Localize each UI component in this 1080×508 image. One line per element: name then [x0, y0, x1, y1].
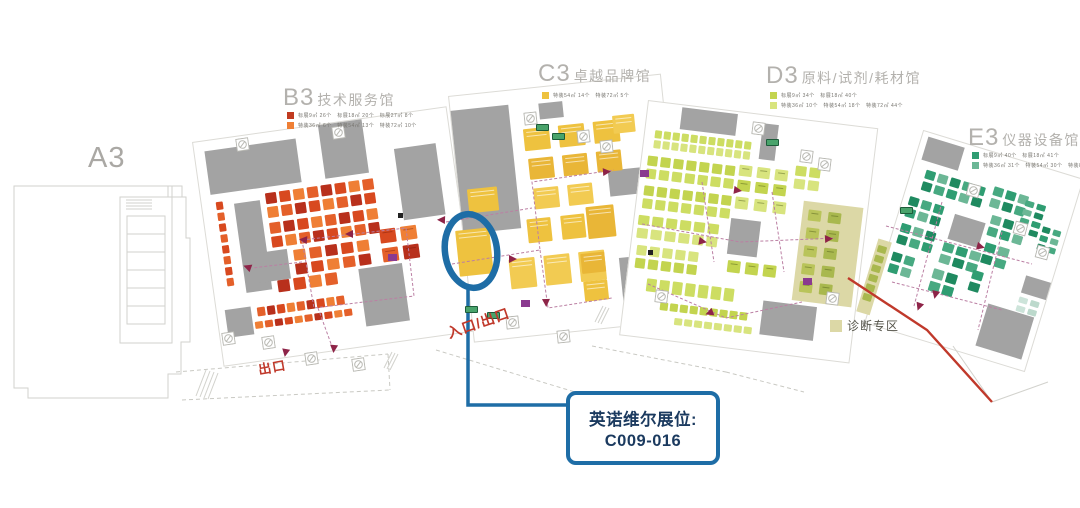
booth-cell [220, 234, 228, 243]
booth-cell [1031, 221, 1041, 229]
booth-cell [669, 303, 678, 312]
booth-cell [311, 216, 323, 228]
stairs-facility-icon [304, 351, 319, 366]
booth-cell [708, 193, 719, 204]
booth-cell [997, 246, 1010, 258]
booth-cell [699, 307, 708, 316]
booth-cell [342, 256, 355, 269]
booth-cell [299, 232, 311, 244]
booth-cell [320, 184, 332, 196]
booth-cell [908, 238, 920, 250]
booth-cell [706, 236, 718, 247]
booth-cell [324, 214, 336, 226]
booth-cell [745, 262, 759, 275]
booth-cell [896, 234, 908, 246]
hall-e3-code: E3 [968, 124, 999, 152]
booth-cell [634, 258, 645, 269]
booth-cell [255, 321, 264, 329]
legend-text: 特装36㎡ 31个 特装54㎡ 30个 特装81㎡ 34个 [983, 162, 1080, 169]
legend-row: 特装36㎡ 10个 特装54㎡ 18个 特装72㎡ 44个 [770, 102, 903, 109]
booth-cell [707, 223, 719, 234]
booth-cell [891, 251, 903, 263]
booth-cell [793, 178, 805, 189]
booth-cell [533, 186, 560, 209]
booth-cell [662, 248, 673, 259]
stairs-facility-icon [221, 331, 236, 346]
booth-cell [921, 242, 933, 254]
restroom-icon [388, 254, 397, 261]
column-marker [398, 213, 403, 218]
booth-cell [903, 255, 915, 267]
restroom-icon [521, 300, 530, 307]
booth-cell [933, 185, 945, 197]
booth-cell [325, 244, 338, 257]
structure-block [253, 249, 291, 283]
booth-cell [304, 314, 313, 322]
booth-cell [707, 147, 715, 156]
booth-cell [350, 194, 362, 206]
booth-cell [721, 195, 732, 206]
booth-cell [296, 301, 305, 311]
diagnostic-zone-label: 诊断专区 [847, 317, 899, 334]
booth-cell [917, 211, 929, 223]
booth-cell [276, 304, 285, 314]
booth-cell [222, 245, 230, 254]
restroom-icon [640, 170, 649, 177]
booth-cell [823, 248, 837, 261]
booth-cell [340, 226, 352, 238]
booth-cell [699, 162, 710, 173]
booth-cell [949, 177, 961, 189]
stairs-facility-icon [556, 329, 570, 343]
booth-cell [805, 227, 819, 240]
booth-cell [729, 311, 738, 320]
booth-cell [900, 267, 912, 279]
booth-cell [314, 313, 323, 321]
booth-cell [803, 245, 817, 258]
booth-cell [269, 222, 281, 234]
booth-cell [638, 215, 650, 226]
booth-cell [257, 306, 266, 316]
booth-cell [562, 153, 589, 176]
booth-cell [680, 143, 688, 152]
booth-cell [1052, 229, 1061, 237]
booth-cell [583, 279, 609, 301]
booth-cell [528, 156, 555, 179]
booth-cell [734, 196, 748, 209]
hall-c3-code: C3 [538, 60, 571, 88]
hall-b3-legend: 标展9㎡ 26个 标展18㎡ 20个 标展27㎡ 8个特装36㎡ 6个 特装54… [287, 112, 417, 132]
booth-cell [920, 200, 932, 212]
booth-cell [306, 186, 318, 198]
booth-cell [306, 300, 315, 310]
booth-cell [723, 288, 735, 302]
hall-b3-name: 技术服务馆 [317, 90, 395, 110]
booth-cell [650, 229, 662, 240]
booth-cell [366, 208, 378, 220]
booth-cell [364, 192, 376, 204]
booth-cell [666, 218, 678, 229]
booth-cell [986, 226, 998, 238]
booth-cell [1005, 190, 1017, 202]
booth-cell [225, 267, 233, 276]
booth-cell [660, 157, 671, 168]
legend-text: 特装36㎡ 6个 特装54㎡ 13个 特装72㎡ 10个 [298, 122, 417, 129]
legend-text: 特装54㎡ 14个 特装72㎡ 5个 [553, 92, 629, 99]
booth-cell [699, 136, 707, 145]
service-point-icon [552, 133, 565, 140]
booth-cell [697, 175, 708, 186]
booth-cell [348, 180, 360, 192]
booth-cell [274, 318, 283, 326]
legend-text: 特装36㎡ 10个 特装54㎡ 18个 特装72㎡ 44个 [781, 102, 903, 109]
booth-cell [284, 317, 293, 325]
booth-cell [223, 256, 231, 265]
booth-cell [1033, 212, 1043, 220]
booth-cell [772, 184, 786, 197]
booth-cell [706, 206, 717, 217]
structure-block [538, 101, 564, 119]
booth-cell [704, 322, 713, 330]
booth-cell [825, 230, 839, 243]
hall-b3-title: B3 技术服务馆 [283, 84, 395, 112]
booth-cell [654, 130, 662, 139]
structure-block [759, 301, 817, 341]
booth-cell [912, 227, 924, 239]
stairs-facility-icon [799, 149, 813, 163]
booth-cell [708, 137, 716, 146]
booth-cell [1024, 200, 1034, 208]
booth-cell [311, 260, 324, 273]
booth-cell [672, 132, 680, 141]
booth-cell [313, 230, 325, 242]
booth-cell [688, 251, 699, 262]
booth-cell [695, 192, 706, 203]
booth-cell [887, 263, 899, 275]
booth-cell [560, 213, 586, 239]
booth-cell [1029, 300, 1039, 308]
booth-cell [316, 298, 325, 308]
booth-cell [669, 188, 680, 199]
restroom-icon [803, 278, 812, 285]
booth-cell [334, 182, 346, 194]
booth-cell [526, 217, 552, 243]
booth-cell [352, 210, 364, 222]
booth-cell [713, 323, 722, 331]
booth-cell [336, 295, 345, 305]
booth-cell [684, 173, 695, 184]
booth-cell [671, 281, 683, 295]
legend-row: 特装54㎡ 14个 特装72㎡ 5个 [542, 92, 629, 99]
structure-block [727, 218, 761, 257]
stairs-facility-icon [576, 129, 590, 143]
booth-cell [1018, 296, 1028, 304]
booth-cell [921, 181, 933, 193]
booth-cell [671, 142, 679, 151]
booth-cell [743, 151, 751, 160]
structure-block [451, 105, 522, 234]
booth-cell [933, 204, 945, 216]
booth-cell [1036, 204, 1046, 212]
booth-cell [334, 310, 343, 318]
hall-b3 [192, 106, 478, 367]
booth-cell [712, 163, 723, 174]
booth-cell [971, 270, 984, 282]
booth-cell [400, 225, 418, 241]
service-point-icon [766, 139, 779, 146]
booth-cell [795, 166, 807, 177]
booth-cell [277, 279, 291, 293]
booth-cell [774, 169, 788, 182]
booth-cell [772, 201, 786, 214]
booth-cell [929, 215, 941, 227]
booth-cell [967, 281, 980, 293]
booth-cell [941, 285, 954, 298]
stairs-facility-icon [751, 121, 765, 135]
booth-cell [993, 258, 1006, 270]
booth-cell [952, 258, 965, 270]
structure-block [947, 214, 985, 248]
legend-text: 标展9㎡ 26个 标展18㎡ 20个 标展27㎡ 8个 [298, 112, 413, 119]
diagnostic-zone-swatch [830, 320, 842, 332]
booth-cell [294, 315, 303, 323]
stairs-facility-icon [351, 357, 366, 372]
booth-cell [655, 200, 666, 211]
booth-cell [354, 224, 366, 236]
booth-cell [652, 216, 664, 227]
booth-cell [756, 167, 770, 180]
structure-block [358, 263, 410, 327]
booth-cell [580, 252, 606, 274]
stairs-facility-icon [825, 291, 839, 305]
booth-cell [341, 242, 354, 255]
stairs-facility-icon [817, 157, 831, 171]
booth-cell [642, 198, 653, 209]
booth-cell [662, 141, 670, 150]
booth-cell [295, 262, 308, 275]
booth-cell [327, 258, 340, 271]
booth-cell [990, 215, 1002, 227]
booth-cell [693, 222, 705, 233]
booth-cell [508, 257, 537, 290]
booth-callout: 英诺维尔展位: C009-016 [566, 391, 720, 465]
booth-cell [727, 260, 741, 273]
booth-cell [710, 176, 721, 187]
hall-c3-legend: 特装54㎡ 14个 特装72㎡ 5个 [542, 92, 629, 102]
stairs-facility-icon [261, 335, 276, 350]
booth-cell [808, 209, 822, 222]
booth-cell [717, 138, 725, 147]
legend-swatch [972, 152, 979, 159]
booth-cell [989, 198, 1001, 210]
booth-cell [673, 262, 684, 273]
legend-row: 标展9㎡ 40个 标展18㎡ 41个 [972, 152, 1080, 159]
legend-swatch [542, 92, 549, 99]
booth-cell [1049, 238, 1058, 246]
highlighted-booth [455, 227, 494, 276]
booth-callout-number: C009-016 [605, 432, 681, 451]
booth-cell [358, 253, 371, 266]
booth-cell [992, 186, 1004, 198]
booth-cell [908, 196, 920, 208]
booth-cell [710, 286, 722, 300]
booth-cell [682, 190, 693, 201]
booth-cell [955, 246, 968, 258]
hall-d3-legend: 标展9㎡ 34个 标展18㎡ 40个特装36㎡ 10个 特装54㎡ 18个 特装… [770, 92, 903, 112]
booth-cell [356, 239, 369, 252]
booth-cell [674, 318, 683, 326]
booth-cell [807, 180, 819, 191]
hall-e3-legend: 标展9㎡ 40个 标展18㎡ 41个特装36㎡ 31个 特装54㎡ 30个 特装… [972, 152, 1080, 172]
booth-cell [686, 160, 697, 171]
booth-cell [271, 235, 283, 247]
stairs-facility-icon [599, 139, 613, 153]
legend-row: 特装36㎡ 31个 特装54㎡ 30个 特装81㎡ 34个 [972, 162, 1080, 169]
booth-cell [283, 220, 295, 232]
booth-cell [719, 309, 728, 318]
booth-cell [281, 204, 293, 216]
hall-a3-label: A3 [88, 142, 125, 175]
exit-label: 出口 [257, 355, 288, 379]
booth-cell [643, 185, 654, 196]
legend-swatch [770, 92, 777, 99]
booth-cell [293, 248, 306, 261]
booth-cell [326, 297, 335, 307]
booth-cell [217, 212, 225, 221]
legend-row: 标展9㎡ 26个 标展18㎡ 20个 标展27㎡ 8个 [287, 112, 417, 119]
booth-cell [658, 170, 669, 181]
booth-cell [636, 228, 648, 239]
booth-cell [690, 135, 698, 144]
booth-cell [692, 234, 704, 245]
booth-cell [980, 254, 993, 266]
hall-b3-code: B3 [283, 84, 314, 112]
booth-cell [733, 325, 742, 333]
booth-cell [679, 220, 691, 231]
legend-row: 特装36㎡ 6个 特装54㎡ 13个 特装72㎡ 10个 [287, 122, 417, 129]
booth-cell [928, 281, 941, 294]
booth-cell [267, 305, 276, 315]
booth-cell [636, 245, 647, 256]
column-marker [648, 250, 653, 255]
booth-cell [671, 172, 682, 183]
booth-cell [999, 230, 1011, 242]
booth-cell [279, 190, 291, 202]
booth-cell [827, 212, 841, 225]
booth-cell [945, 189, 957, 201]
diagnostic-zone-legend: 诊断专区 [830, 317, 899, 334]
stairs-facility-icon [654, 289, 668, 303]
booth-cell [663, 131, 671, 140]
booth-cell [679, 304, 688, 313]
booth-cell [219, 223, 227, 232]
booth-cell [931, 268, 944, 281]
booth-callout-company: 英诺维尔展位: [589, 406, 697, 430]
booth-cell [1001, 202, 1013, 214]
booth-cell [899, 223, 911, 235]
booth-cell [684, 319, 693, 327]
booth-cell [344, 308, 353, 316]
booth-cell [1039, 235, 1048, 243]
booth-cell [324, 311, 333, 319]
booth-cell [737, 180, 751, 193]
booth-cell [698, 146, 706, 155]
booth-cell [308, 200, 320, 212]
booth-cell [664, 231, 676, 242]
booth-cell [1028, 229, 1038, 237]
booth-cell [668, 201, 679, 212]
booth-cell [309, 246, 322, 259]
booth-cell [734, 150, 742, 159]
booth-cell [585, 204, 616, 239]
structure-block [204, 139, 301, 195]
booth-cell [723, 178, 734, 189]
stairs-facility-icon [235, 137, 250, 152]
booth-cell [937, 173, 949, 185]
booth-cell [612, 114, 636, 134]
booth-cell [689, 306, 698, 315]
booth-cell [285, 233, 297, 245]
booth-cell [322, 198, 334, 210]
booth-cell [689, 144, 697, 153]
booth-cell [942, 242, 955, 254]
booth-cell [723, 324, 732, 332]
legend-swatch [972, 162, 979, 169]
structure-block [1021, 275, 1051, 300]
booth-cell [735, 140, 743, 149]
booth-cell [725, 149, 733, 158]
booth-cell [653, 140, 661, 149]
expo-floor-map: A3 B3 技术服务馆 C3 卓越品牌馆 D3 原料/试剂/耗材馆 E3 仪器设… [0, 0, 1080, 508]
booth-cell [739, 312, 748, 321]
structure-block [921, 137, 964, 171]
service-point-icon [536, 124, 549, 131]
hall-c3-name: 卓越品牌馆 [574, 66, 652, 86]
service-point-icon [900, 207, 913, 214]
hall-a3 [14, 186, 190, 398]
booth-cell [744, 141, 752, 150]
booth-cell [362, 178, 374, 190]
booth-cell [983, 242, 996, 254]
legend-swatch [287, 112, 294, 119]
booth-cell [743, 326, 752, 334]
booth-cell [286, 302, 295, 312]
booth-cell [467, 186, 499, 213]
booth-cell [719, 208, 730, 219]
booth-cell [681, 133, 689, 142]
booth-cell [297, 218, 309, 230]
booth-cell [338, 212, 350, 224]
booth-cell [379, 228, 397, 244]
structure-block [680, 107, 738, 136]
booth-cell [753, 199, 767, 212]
booth-cell [647, 155, 658, 166]
booth-cell [656, 187, 667, 198]
booth-cell [801, 263, 815, 276]
booth-cell [336, 196, 348, 208]
legend-text: 标展9㎡ 34个 标展18㎡ 40个 [781, 92, 857, 99]
legend-text: 标展9㎡ 40个 标展18㎡ 41个 [983, 152, 1059, 159]
hall-d3-title: D3 原料/试剂/耗材馆 [766, 62, 921, 90]
booth-cell [402, 243, 420, 259]
legend-swatch [287, 122, 294, 129]
booth-cell [265, 192, 277, 204]
hall-c3-title: C3 卓越品牌馆 [538, 60, 651, 88]
booth-cell [716, 148, 724, 157]
booth-cell [755, 182, 769, 195]
hall-e3-title: E3 仪器设备馆 [968, 124, 1080, 152]
booth-cell [265, 320, 274, 328]
